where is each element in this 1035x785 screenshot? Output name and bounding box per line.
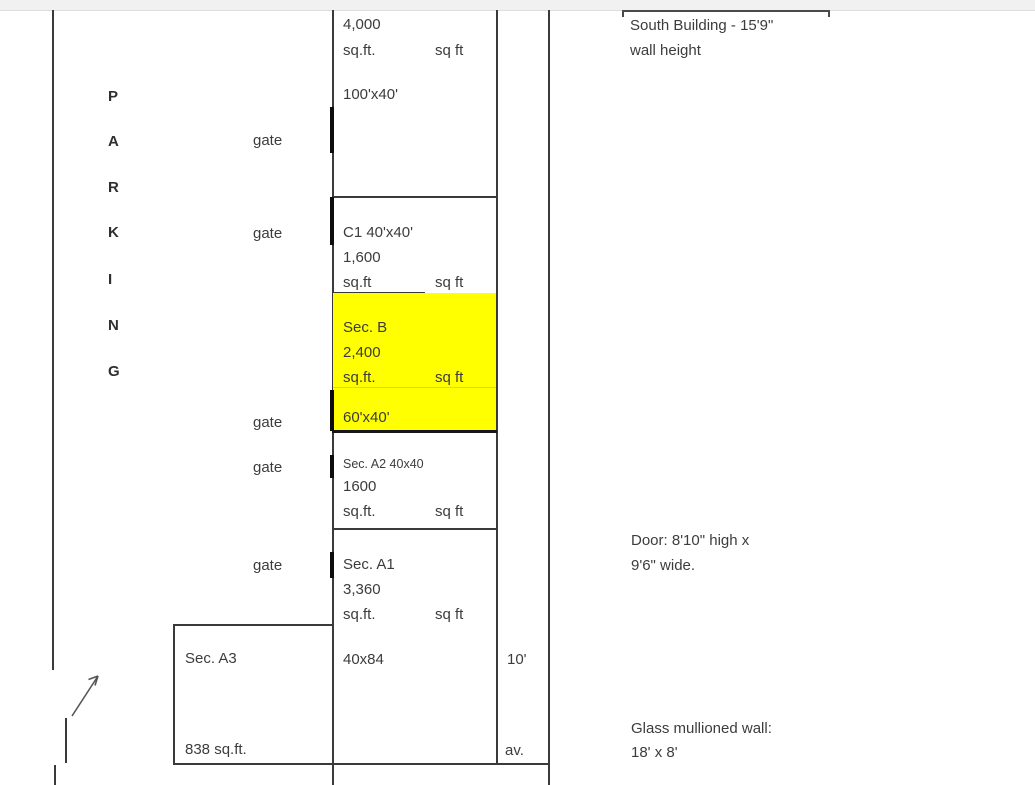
sec-b-unit-right: sq ft — [435, 369, 463, 388]
parking-letter-n: N — [108, 317, 119, 336]
sec-a1-unit-right: sq ft — [435, 606, 463, 625]
sec-c1-unit-left: sq.ft — [343, 274, 371, 293]
sec-a3-west-wall-line — [173, 624, 175, 763]
gate-label-5: gate — [253, 557, 282, 576]
south-building-note-line1: South Building - 15'9" — [630, 17, 773, 36]
sec-a2-unit-right: sq ft — [435, 503, 463, 522]
sec-a1-dims: 40x84 — [343, 651, 384, 670]
sec-a3-top-wall-line — [173, 624, 333, 626]
left-bottom-segment-line — [54, 765, 56, 785]
sec-b-name: Sec. B — [343, 319, 387, 338]
sec-b-unit-left: sq.ft. — [343, 369, 376, 388]
building-east-wall-line — [496, 10, 498, 763]
sec-north-area: 4,000 — [343, 16, 381, 35]
sec-c1-name: C1 40'x40' — [343, 224, 413, 243]
parking-letter-k: K — [108, 224, 119, 243]
sec-a2-area: 1600 — [343, 478, 376, 497]
direction-arrow-icon — [60, 666, 106, 722]
gate-opening-mark-5 — [330, 552, 334, 578]
gate-label-1: gate — [253, 132, 282, 151]
sec-north-dims: 100'x40' — [343, 86, 398, 105]
window-top-strip — [0, 0, 1035, 11]
wall-dimension-bracket — [622, 10, 830, 17]
sec-a1-unit-left: sq.ft. — [343, 606, 376, 625]
gate-opening-mark-2 — [330, 197, 334, 245]
parking-letter-p: P — [108, 88, 118, 107]
sec-a1-area: 3,360 — [343, 581, 381, 600]
sec-north-unit-right: sq ft — [435, 42, 463, 61]
parking-letter-r: R — [108, 179, 119, 198]
avenue-width-label: 10' — [507, 651, 527, 670]
sec-b-bottom-divider-line — [332, 430, 497, 433]
sec-c1-unit-right: sq ft — [435, 274, 463, 293]
parking-boundary-line — [52, 10, 54, 670]
sec-c1-top-divider-line — [332, 196, 497, 198]
left-lower-segment-line — [65, 718, 67, 763]
gate-label-2: gate — [253, 225, 282, 244]
sec-a2-name: Sec. A2 40x40 — [343, 457, 424, 473]
sec-c1-area: 1,600 — [343, 249, 381, 268]
avenue-abbr-label: av. — [505, 742, 524, 761]
gate-opening-mark-1 — [330, 107, 334, 153]
door-note-line1: Door: 8'10" high x — [631, 532, 749, 551]
sec-b-dims: 60'x40' — [343, 409, 390, 428]
gate-label-3: gate — [253, 414, 282, 433]
parking-letter-i: I — [108, 271, 112, 290]
parking-letter-g: G — [108, 363, 120, 382]
gate-label-4: gate — [253, 459, 282, 478]
south-building-note-line2: wall height — [630, 42, 701, 61]
building-south-wall-line — [173, 763, 550, 765]
gate-opening-mark-3 — [330, 390, 334, 431]
floor-plan-canvas: P A R K I N G gate gate gate gate gate 4… — [0, 0, 1035, 785]
sec-a3-name: Sec. A3 — [185, 650, 237, 669]
sec-north-unit-left: sq.ft. — [343, 42, 376, 61]
door-note-line2: 9'6" wide. — [631, 557, 695, 576]
gate-opening-mark-4 — [330, 455, 334, 478]
glass-wall-note-line2: 18' x 8' — [631, 744, 678, 763]
sec-a2-bottom-divider-line — [332, 528, 497, 530]
sec-a1-name: Sec. A1 — [343, 556, 395, 575]
avenue-line — [548, 10, 550, 785]
sec-a2-unit-left: sq.ft. — [343, 503, 376, 522]
sec-a3-area: 838 sq.ft. — [185, 741, 247, 760]
parking-letter-a: A — [108, 133, 119, 152]
sec-b-area: 2,400 — [343, 344, 381, 363]
glass-wall-note-line1: Glass mullioned wall: — [631, 720, 772, 739]
